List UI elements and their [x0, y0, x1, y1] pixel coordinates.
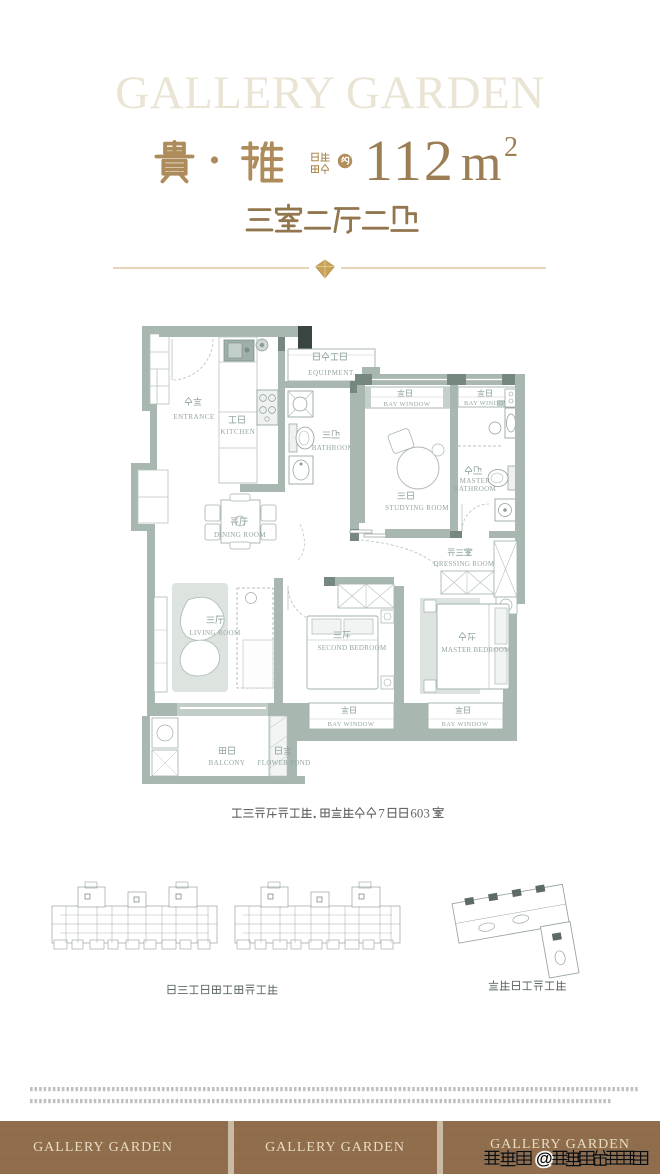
svg-text:DRESSING ROOM: DRESSING ROOM [434, 560, 495, 568]
svg-text:BAY WINDOW: BAY WINDOW [328, 721, 375, 728]
svg-text:7: 7 [378, 806, 385, 821]
svg-text:MASTER BEDROOM: MASTER BEDROOM [441, 646, 511, 654]
svg-text:2: 2 [504, 132, 518, 163]
svg-text:@: @ [536, 1149, 553, 1168]
svg-text:ENTRANCE: ENTRANCE [173, 413, 214, 421]
svg-text:GALLERY GARDEN: GALLERY GARDEN [265, 1140, 405, 1155]
svg-text:BALCONY: BALCONY [209, 759, 246, 767]
svg-text:KITCHEN: KITCHEN [221, 428, 256, 436]
svg-text:SECOND BEDROOM: SECOND BEDROOM [318, 644, 387, 652]
svg-text:EQUIPMENT: EQUIPMENT [308, 369, 354, 377]
svg-text:BATHROOM: BATHROOM [312, 444, 355, 452]
svg-text:LIVING ROOM: LIVING ROOM [189, 629, 241, 637]
svg-text:112: 112 [364, 128, 455, 193]
svg-text:STUDYING ROOM: STUDYING ROOM [385, 504, 449, 512]
svg-text:BAY WINDOW: BAY WINDOW [464, 400, 510, 407]
svg-text:DINING ROOM: DINING ROOM [214, 531, 266, 539]
svg-text:BAY WINDOW: BAY WINDOW [442, 721, 489, 728]
svg-text:MASTER: MASTER [460, 477, 491, 485]
svg-text:GALLERY GARDEN: GALLERY GARDEN [115, 67, 545, 119]
svg-text:BATHROOM: BATHROOM [454, 485, 497, 493]
svg-text:603: 603 [410, 806, 430, 821]
svg-text:BAY WINDOW: BAY WINDOW [384, 401, 431, 408]
svg-text:GALLERY GARDEN: GALLERY GARDEN [490, 1137, 630, 1152]
svg-text:m: m [461, 135, 501, 192]
svg-text:GALLERY GARDEN: GALLERY GARDEN [33, 1140, 173, 1155]
svg-text:FLOWER POND: FLOWER POND [258, 759, 311, 767]
